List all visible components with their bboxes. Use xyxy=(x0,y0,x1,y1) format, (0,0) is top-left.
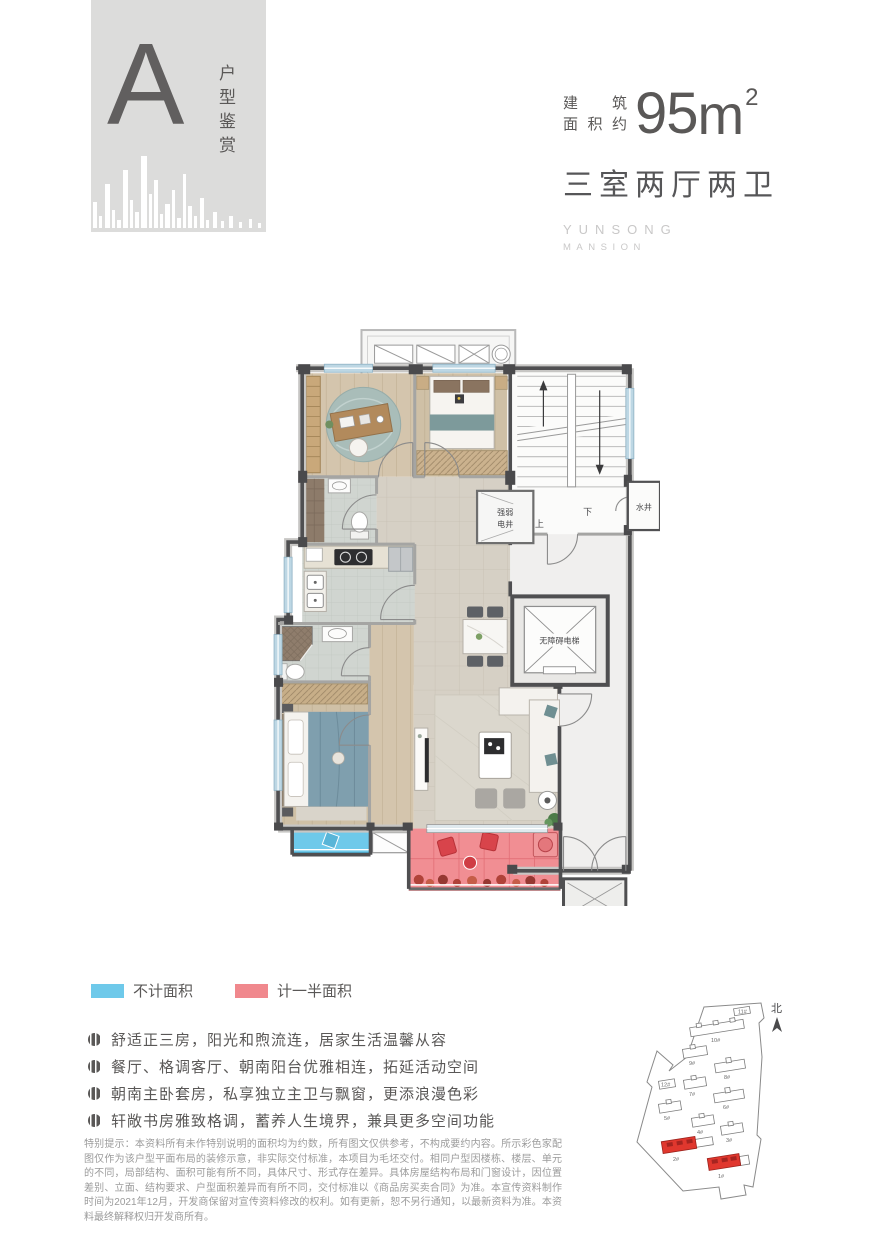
svg-text:6#: 6# xyxy=(723,1105,730,1111)
unit-letter: A xyxy=(107,26,184,142)
stairs-up-label: 上 xyxy=(535,519,544,529)
water-shaft: 水井 xyxy=(628,482,660,530)
unit-summary: 建筑 面积约 95 m 2 三室两厅两卫 YUNSONG MANSION xyxy=(563,90,779,253)
svg-text:强弱: 强弱 xyxy=(497,508,513,517)
brochure-page: A 户型鉴赏 建筑 面积约 xyxy=(0,0,880,1252)
legend-label: 不计面积 xyxy=(133,980,193,1001)
svg-text:2#: 2# xyxy=(673,1157,680,1163)
master-furniture xyxy=(278,684,368,821)
ac-platform xyxy=(373,833,409,853)
brand-line-1: YUNSONG xyxy=(563,222,779,237)
striped-circle-icon xyxy=(88,1060,101,1073)
tv-console xyxy=(415,728,429,790)
striped-circle-icon xyxy=(88,1087,101,1100)
feature-item: 朝南主卧套房，私享独立主卫与飘窗，更添浪漫色彩 xyxy=(88,1080,495,1107)
svg-text:9#: 9# xyxy=(689,1061,696,1067)
feature-text: 朝南主卧套房，私享独立主卫与飘窗，更添浪漫色彩 xyxy=(111,1083,479,1104)
legend-label: 计一半面积 xyxy=(277,980,352,1001)
feature-item: 舒适正三房，阳光和煦流连，居家生活温馨从容 xyxy=(88,1026,495,1053)
svg-text:1#: 1# xyxy=(718,1174,725,1180)
svg-text:5#: 5# xyxy=(664,1116,671,1122)
legend-item-half: 计一半面积 xyxy=(235,980,352,1001)
striped-circle-icon xyxy=(88,1033,101,1046)
north-indicator: 北 xyxy=(771,1002,782,1032)
legend-item-excluded: 不计面积 xyxy=(91,980,193,1001)
area-number: 95 xyxy=(635,90,698,138)
feature-text: 轩敞书房雅致格调，蓄养人生境界，兼具更多空间功能 xyxy=(111,1110,495,1131)
stairs-down-label: 下 xyxy=(583,507,592,517)
svg-text:11#: 11# xyxy=(738,1010,748,1016)
equipment-platform xyxy=(361,330,515,380)
feature-item: 轩敞书房雅致格调，蓄养人生境界，兼具更多空间功能 xyxy=(88,1107,495,1134)
feature-list: 舒适正三房，阳光和煦流连，居家生活温馨从容 餐厅、格调客厅、朝南阳台优雅相连，拓… xyxy=(88,1026,495,1134)
feature-text: 舒适正三房，阳光和煦流连，居家生活温馨从容 xyxy=(111,1029,447,1050)
svg-text:7#: 7# xyxy=(689,1092,696,1098)
svg-text:水井: 水井 xyxy=(636,502,652,512)
siteplan-map: 11# 10# 9# 8# 12# 7# 6# 5# 4# 3# xyxy=(625,995,790,1215)
feature-item: 餐厅、格调客厅、朝南阳台优雅相连，拓延活动空间 xyxy=(88,1053,495,1080)
elevator-lower-partial xyxy=(564,879,626,906)
svg-text:北: 北 xyxy=(771,1002,782,1015)
striped-circle-icon xyxy=(88,1114,101,1127)
legend-swatch-blue xyxy=(91,984,124,998)
bedroom2-furniture xyxy=(417,376,507,475)
svg-text:电井: 电井 xyxy=(497,519,513,529)
svg-text:12#: 12# xyxy=(661,1083,671,1089)
rooms-summary: 三室两厅两卫 xyxy=(563,160,779,204)
svg-text:无障碍电梯: 无障碍电梯 xyxy=(539,636,579,646)
svg-text:8#: 8# xyxy=(724,1075,731,1081)
elevator: 无障碍电梯 xyxy=(512,596,607,684)
feature-text: 餐厅、格调客厅、朝南阳台优雅相连，拓延活动空间 xyxy=(111,1056,479,1077)
unit-series-label: 户型鉴赏 xyxy=(213,64,238,160)
unit-hero-block: A 户型鉴赏 xyxy=(91,0,266,232)
south-balcony-area xyxy=(409,829,561,891)
disclaimer-text: 特别提示：本资料所有未作特别说明的面积均为约数，所有图文仅供参考，不构成要约内容… xyxy=(84,1138,562,1225)
svg-text:3#: 3# xyxy=(726,1138,733,1144)
brand-line-2: MANSION xyxy=(563,242,779,253)
skyline-graphic xyxy=(91,154,266,228)
living-furniture xyxy=(435,688,561,827)
legend-swatch-pink xyxy=(235,984,268,998)
area-label: 建筑 面积约 xyxy=(563,93,627,135)
floorplan-drawing: 强弱 电井 水井 上 下 无障碍电梯 xyxy=(266,328,660,906)
svg-text:10#: 10# xyxy=(711,1038,721,1044)
area-exponent: 2 xyxy=(745,84,758,112)
svg-text:4#: 4# xyxy=(697,1130,704,1136)
area-unit: m xyxy=(698,92,745,138)
hall-floor xyxy=(370,625,414,829)
electric-shaft: 强弱 电井 xyxy=(477,491,533,543)
legend: 不计面积 计一半面积 xyxy=(91,980,352,1001)
